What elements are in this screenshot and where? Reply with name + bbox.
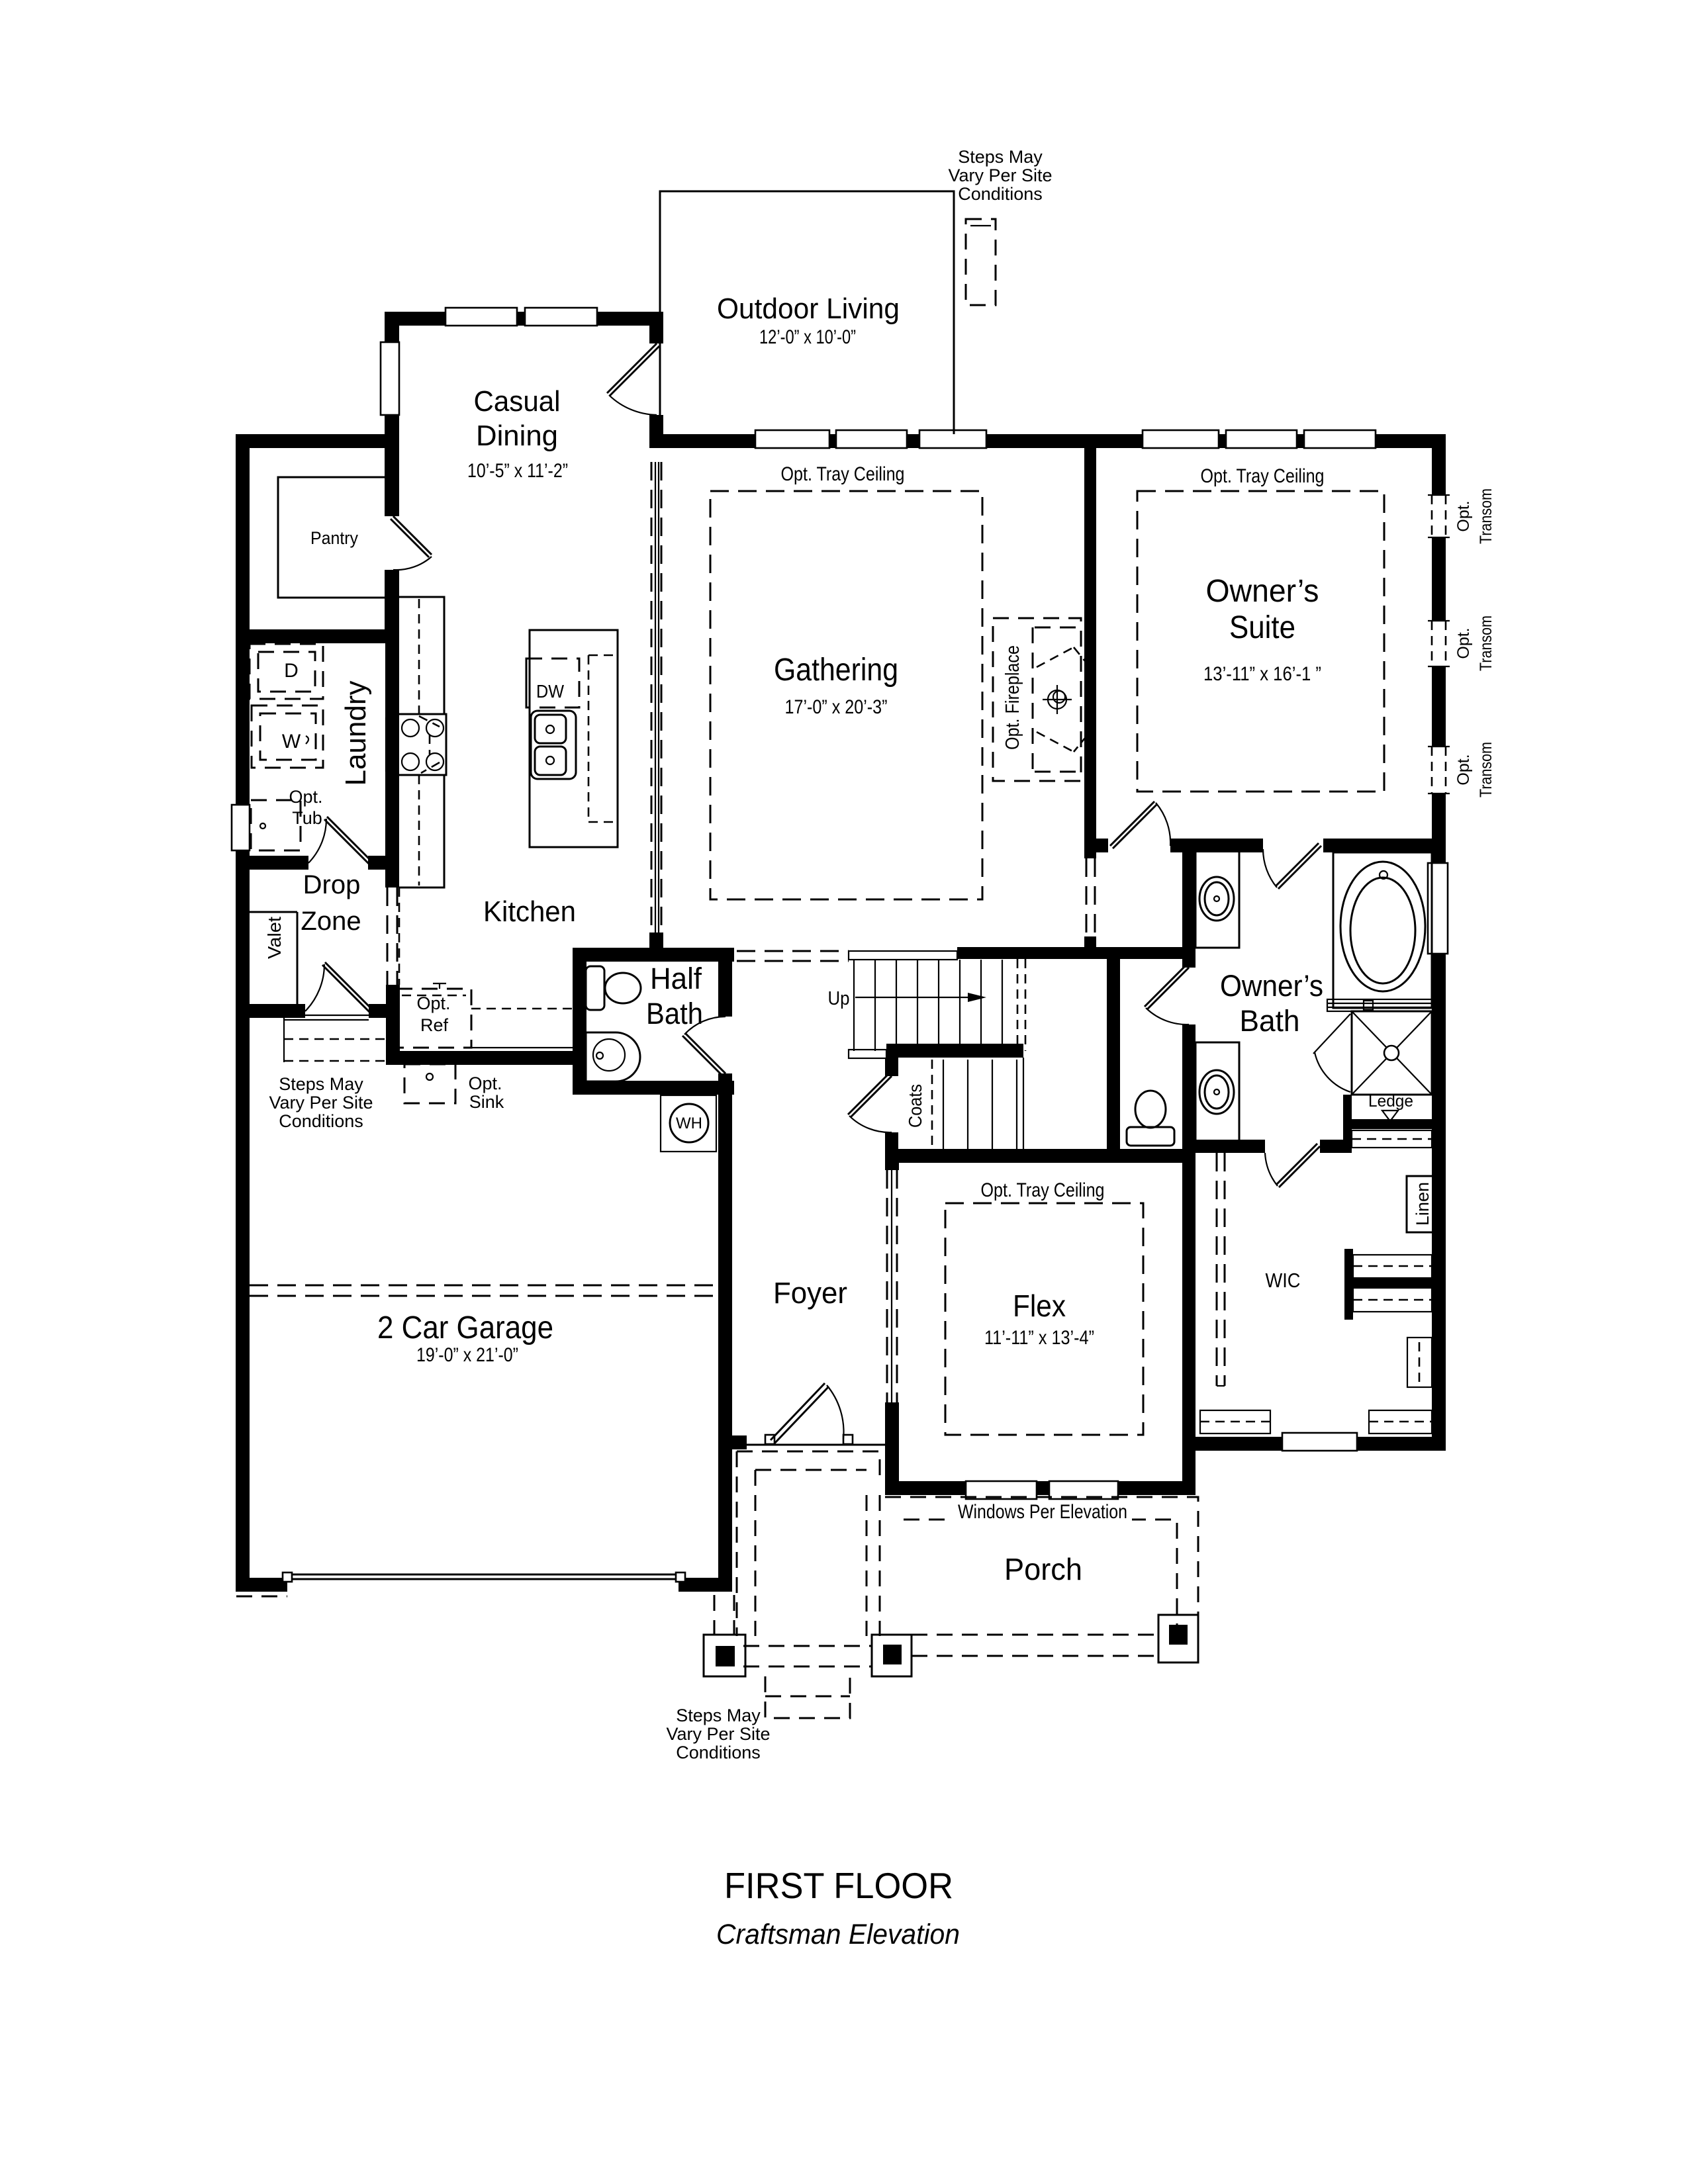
svg-text:Half: Half <box>650 962 702 995</box>
svg-text:Steps May: Steps May <box>958 147 1043 167</box>
svg-text:W: W <box>282 731 301 752</box>
svg-text:Ledge: Ledge <box>1368 1092 1413 1111</box>
svg-text:Transom: Transom <box>1477 742 1495 797</box>
svg-text:Bath: Bath <box>646 997 703 1030</box>
svg-text:Dining: Dining <box>476 420 558 452</box>
svg-text:DW: DW <box>536 681 565 702</box>
svg-text:Casual: Casual <box>474 385 561 418</box>
svg-text:Steps May: Steps May <box>279 1074 363 1094</box>
svg-text:Opt.: Opt. <box>468 1073 502 1093</box>
svg-text:Opt. Tray Ceiling: Opt. Tray Ceiling <box>981 1179 1105 1201</box>
svg-text:Transom: Transom <box>1477 488 1495 544</box>
svg-text:Conditions: Conditions <box>958 184 1043 204</box>
svg-text:Opt.: Opt. <box>1454 627 1473 659</box>
svg-text:Tub: Tub <box>292 808 322 828</box>
svg-text:Drop: Drop <box>303 870 361 899</box>
svg-text:Sink: Sink <box>469 1092 504 1112</box>
svg-text:Opt.: Opt. <box>1454 754 1473 785</box>
svg-text:FIRST FLOOR: FIRST FLOOR <box>724 1865 953 1906</box>
svg-text:Opt. Tray Ceiling: Opt. Tray Ceiling <box>781 463 905 485</box>
svg-text:Transom: Transom <box>1477 615 1495 671</box>
svg-text:Pantry: Pantry <box>310 528 358 548</box>
svg-text:D: D <box>284 660 299 682</box>
svg-text:Vary Per Site: Vary Per Site <box>666 1724 770 1744</box>
svg-text:Opt. Tray Ceiling: Opt. Tray Ceiling <box>1201 465 1325 487</box>
svg-text:Foyer: Foyer <box>773 1276 847 1310</box>
svg-text:Linen: Linen <box>1413 1182 1432 1226</box>
svg-text:Laundry: Laundry <box>340 680 372 786</box>
svg-text:Suite: Suite <box>1229 610 1295 645</box>
svg-text:19’-0” x 21’-0”: 19’-0” x 21’-0” <box>416 1344 518 1366</box>
svg-text:Up: Up <box>828 988 850 1009</box>
svg-text:Opt.: Opt. <box>289 787 322 807</box>
svg-text:WIC: WIC <box>1266 1269 1301 1292</box>
svg-text:Valet: Valet <box>264 917 285 959</box>
svg-text:12’-0” x 10’-0”: 12’-0” x 10’-0” <box>759 326 856 348</box>
svg-text:Flex: Flex <box>1013 1289 1066 1323</box>
svg-text:Gathering: Gathering <box>774 653 898 688</box>
svg-text:Bath: Bath <box>1240 1004 1300 1038</box>
svg-text:Coats: Coats <box>905 1084 925 1128</box>
svg-text:Owner’s: Owner’s <box>1206 574 1319 609</box>
svg-text:Kitchen: Kitchen <box>483 895 576 928</box>
svg-text:Opt.: Opt. <box>416 993 450 1013</box>
svg-text:11’-11” x 13’-4”: 11’-11” x 13’-4” <box>984 1327 1094 1349</box>
svg-text:Windows Per Elevation: Windows Per Elevation <box>958 1501 1127 1523</box>
svg-text:Vary Per Site: Vary Per Site <box>948 165 1052 185</box>
svg-text:Opt. Fireplace: Opt. Fireplace <box>1002 645 1023 750</box>
svg-text:17’-0” x 20’-3”: 17’-0” x 20’-3” <box>785 696 888 718</box>
svg-text:Craftsman Elevation: Craftsman Elevation <box>716 1919 960 1950</box>
svg-text:Steps May: Steps May <box>676 1706 761 1725</box>
svg-text:Conditions: Conditions <box>279 1111 363 1131</box>
svg-text:Owner’s: Owner’s <box>1220 969 1323 1003</box>
svg-text:Zone: Zone <box>301 907 361 936</box>
svg-text:Opt.: Opt. <box>1454 500 1473 531</box>
svg-text:13’-11” x 16’-1 ”: 13’-11” x 16’-1 ” <box>1203 663 1321 685</box>
svg-text:Outdoor Living: Outdoor Living <box>717 293 900 325</box>
svg-text:Ref: Ref <box>420 1015 449 1035</box>
svg-text:10’-5” x 11’-2”: 10’-5” x 11’-2” <box>467 460 568 482</box>
svg-text:Conditions: Conditions <box>676 1743 761 1762</box>
svg-text:WH: WH <box>676 1115 702 1132</box>
svg-text:2 Car Garage: 2 Car Garage <box>377 1310 553 1345</box>
svg-text:Porch: Porch <box>1004 1552 1082 1586</box>
svg-text:Vary Per Site: Vary Per Site <box>269 1093 373 1113</box>
